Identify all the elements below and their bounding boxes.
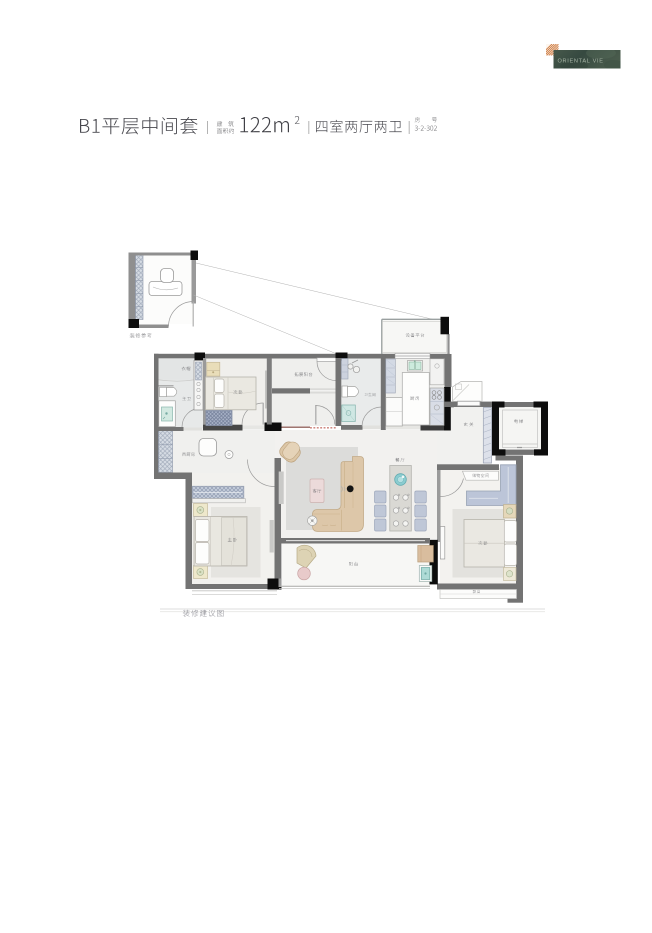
svg-text:ORIENTAL VIE: ORIENTAL VIE <box>558 59 604 65</box>
